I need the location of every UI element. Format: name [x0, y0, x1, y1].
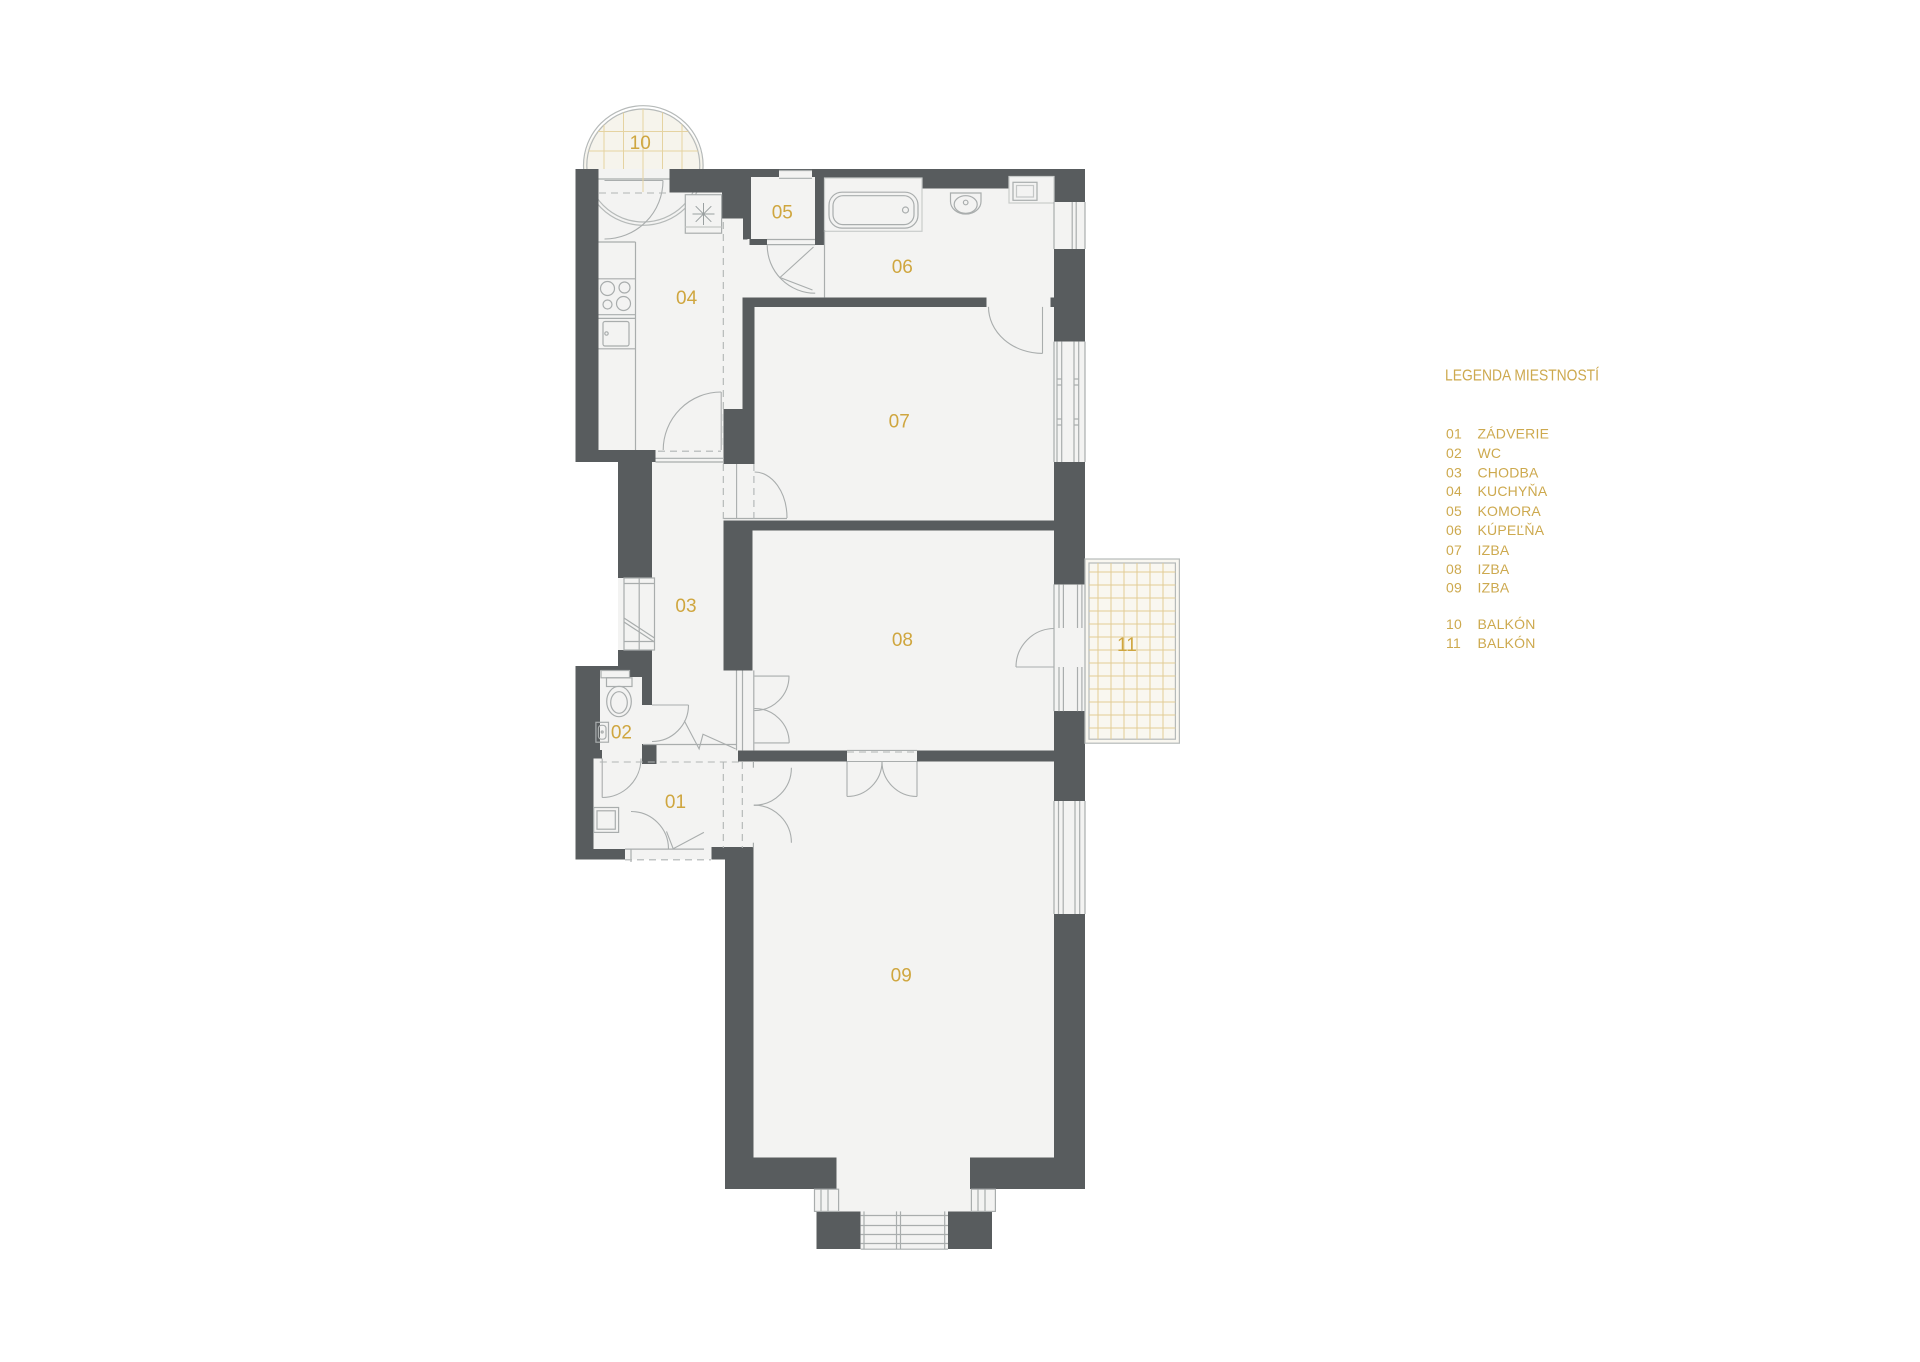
svg-text:09: 09: [891, 966, 912, 987]
svg-text:BALKÓN: BALKÓN: [1478, 635, 1536, 651]
svg-text:02: 02: [611, 723, 632, 744]
svg-text:03: 03: [675, 596, 696, 617]
svg-text:01: 01: [1446, 426, 1462, 442]
svg-text:05: 05: [1446, 503, 1462, 519]
svg-text:WC: WC: [1478, 445, 1502, 461]
svg-text:IZBA: IZBA: [1478, 561, 1510, 577]
svg-text:KUCHYŇA: KUCHYŇA: [1478, 483, 1548, 499]
svg-text:10: 10: [630, 133, 651, 154]
svg-text:06: 06: [892, 257, 913, 278]
svg-text:06: 06: [1446, 522, 1462, 538]
svg-text:LEGENDA MIESTNOSTÍ: LEGENDA MIESTNOSTÍ: [1445, 366, 1599, 385]
svg-text:04: 04: [676, 288, 698, 309]
svg-text:BALKÓN: BALKÓN: [1478, 616, 1536, 632]
svg-text:KÚPEĽŇA: KÚPEĽŇA: [1478, 522, 1545, 538]
svg-text:IZBA: IZBA: [1478, 580, 1510, 596]
svg-text:01: 01: [665, 792, 686, 813]
svg-text:08: 08: [892, 630, 913, 651]
svg-text:11: 11: [1446, 635, 1461, 651]
svg-text:07: 07: [889, 412, 910, 433]
svg-text:CHODBA: CHODBA: [1478, 464, 1540, 480]
svg-text:IZBA: IZBA: [1478, 542, 1510, 558]
svg-text:10: 10: [1446, 616, 1462, 632]
svg-text:ZÁDVERIE: ZÁDVERIE: [1478, 426, 1550, 442]
svg-text:02: 02: [1446, 445, 1462, 461]
svg-text:05: 05: [772, 203, 793, 224]
svg-text:11: 11: [1117, 635, 1137, 656]
svg-text:07: 07: [1446, 542, 1462, 558]
svg-text:04: 04: [1446, 483, 1462, 499]
svg-text:08: 08: [1446, 561, 1462, 577]
svg-text:03: 03: [1446, 464, 1462, 480]
svg-text:KOMORA: KOMORA: [1478, 503, 1542, 519]
svg-text:09: 09: [1446, 580, 1462, 596]
